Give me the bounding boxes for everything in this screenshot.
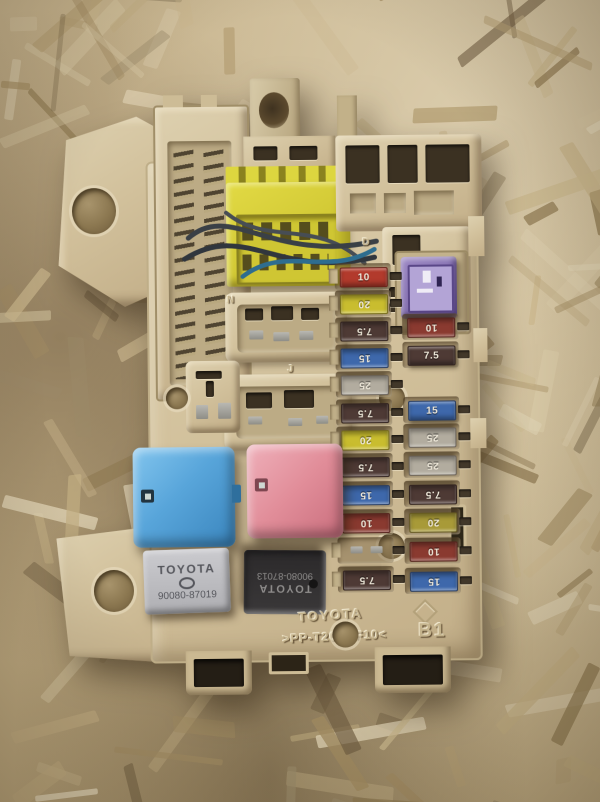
panel-vent xyxy=(392,490,404,498)
fuse-slot xyxy=(337,537,393,564)
bottom-foot-left-opening xyxy=(194,659,244,688)
panel-notch xyxy=(332,572,341,587)
black-relay-coil-hole xyxy=(309,579,318,588)
molded-position-code: B1 xyxy=(418,620,447,642)
panel-notch xyxy=(329,323,338,338)
fuse-box: N D J 10207.515257.5207.515107.5107.5152… xyxy=(0,0,600,802)
fuse-20A: 20 xyxy=(340,294,388,315)
bottom-round-hole xyxy=(332,621,358,647)
panel-vent xyxy=(392,518,404,526)
fuse-7.5A: 7.5 xyxy=(407,345,455,366)
panel-vent xyxy=(393,575,405,583)
panel-notch xyxy=(331,543,340,558)
panel-vent xyxy=(390,272,402,280)
fuse-7.5A: 7.5 xyxy=(343,570,391,591)
panel-notch xyxy=(329,269,338,284)
panel-notch xyxy=(329,296,338,311)
fuse-15A: 15 xyxy=(408,400,456,421)
fuse-20A: 20 xyxy=(341,430,389,451)
grey-relay-part-number: 90080-87019 xyxy=(158,589,217,602)
black-relay-brand: TOYOTA xyxy=(258,582,312,594)
right-edge-tab xyxy=(473,328,487,362)
blue-relay-hole xyxy=(141,490,154,503)
black-relay-part-number: 90080-87013 xyxy=(257,570,313,581)
blue-relay-tab xyxy=(232,485,241,503)
grey-relay: TOYOTA 90080-87019 xyxy=(143,548,231,615)
bottom-foot-right-opening xyxy=(383,655,443,686)
fuse-7.5A: 7.5 xyxy=(341,403,389,424)
panel-vent xyxy=(458,405,470,413)
empty-slot-terminal xyxy=(371,546,383,553)
panel-notch xyxy=(330,377,339,392)
panel-vent xyxy=(457,322,469,330)
panel-vent xyxy=(391,353,403,361)
fuse-panel: 10207.515257.5207.515107.5107.51525257.5… xyxy=(0,0,600,802)
fuse-7.5A: 7.5 xyxy=(342,457,390,478)
panel-vent xyxy=(459,460,471,468)
panel-vent xyxy=(391,435,403,443)
photo-scene: N D J 10207.515257.5207.515107.5107.5152… xyxy=(0,0,600,802)
panel-vent xyxy=(458,432,470,440)
fuse-15A: 15 xyxy=(410,571,458,592)
panel-vent xyxy=(459,489,471,497)
grey-relay-brand: TOYOTA xyxy=(157,561,215,577)
panel-notch xyxy=(330,405,339,420)
fuse-15A: 15 xyxy=(340,348,388,369)
fuse-10A: 10 xyxy=(340,267,388,288)
fuse-10A: 10 xyxy=(342,513,390,534)
fuse-15A: 15 xyxy=(342,485,390,506)
panel-vent xyxy=(393,546,405,554)
panel-vent xyxy=(390,326,402,334)
panel-vent xyxy=(391,408,403,416)
fuse-7.5A: 7.5 xyxy=(340,321,388,342)
right-edge-tab xyxy=(468,216,484,256)
panel-vent xyxy=(460,576,472,584)
fuse-25A: 25 xyxy=(408,427,456,448)
fuse-10A: 10 xyxy=(407,317,455,338)
bottom-center-slot xyxy=(269,652,309,674)
panel-vent xyxy=(391,380,403,388)
fuse-20A: 20 xyxy=(409,512,457,533)
right-edge-tab xyxy=(470,418,486,448)
pink-relay-hole xyxy=(255,478,268,491)
fuse-10A: 10 xyxy=(409,541,457,562)
fuse-7.5A: 7.5 xyxy=(409,484,457,505)
panel-vent xyxy=(392,462,404,470)
fuse-25A: 25 xyxy=(409,455,457,476)
panel-vent xyxy=(457,350,469,358)
panel-vent xyxy=(460,546,472,554)
panel-notch xyxy=(329,350,338,365)
panel-vent xyxy=(459,517,471,525)
empty-slot-terminal xyxy=(351,546,363,553)
black-relay: TOYOTA 90080-87013 xyxy=(244,550,326,615)
fuse-25A: 25 xyxy=(341,375,389,396)
grey-relay-logo xyxy=(179,576,195,589)
panel-vent xyxy=(390,299,402,307)
